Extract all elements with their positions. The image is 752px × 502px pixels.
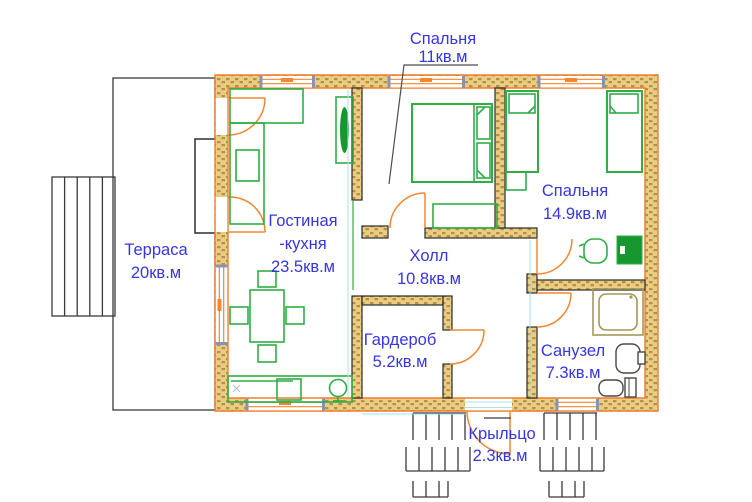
window-bedroom-right	[538, 76, 606, 88]
desk-item	[620, 246, 625, 254]
wall-wardrobe-right-a	[443, 296, 452, 330]
double-bed	[412, 104, 492, 182]
door-bedroom-right	[537, 239, 572, 274]
single-bed-right	[607, 91, 642, 172]
chimney-block	[195, 139, 216, 233]
counter-mark	[233, 385, 240, 392]
wall-wardrobe-right-b	[443, 364, 452, 398]
wall-living-wardrobe	[352, 296, 362, 398]
tall-plant	[336, 97, 353, 163]
hall-label-area: 10.8кв.м	[397, 270, 461, 288]
living-label-name: Гостиная	[268, 212, 337, 230]
living-label-name2: -кухня	[279, 235, 326, 253]
bathroom-label-name: Санузел	[541, 342, 605, 360]
hall-label-name: Холл	[410, 247, 449, 265]
window-bedroom-top	[388, 76, 466, 88]
floor-plan-drawing: Спальня 11кв.м Спальня 14.9кв.м Терраса …	[0, 0, 752, 502]
wardrobe-label-name: Гардероб	[364, 331, 437, 349]
door-terrace-1	[228, 98, 265, 135]
window-left-wall	[216, 265, 228, 346]
terrace-label-name: Терраса	[124, 241, 188, 259]
bedroom-top-label-name: Спальня	[410, 30, 476, 48]
bedroom-right-label-area: 14.9кв.м	[543, 205, 607, 223]
door-bathroom	[537, 293, 571, 327]
shower-cabin	[593, 289, 643, 335]
wall-bedroom-hall	[425, 228, 537, 238]
door-bedroom-top	[390, 193, 425, 228]
terrace-door-opening-1	[216, 98, 228, 135]
terrace-label-area: 20кв.м	[131, 264, 181, 282]
terrace-door-opening-2	[216, 197, 228, 232]
bedroom-right-label-name: Спальня	[542, 182, 608, 200]
nightstand	[506, 172, 526, 190]
dining-table	[250, 290, 284, 342]
entrance-opening	[465, 399, 512, 411]
wall-wardrobe-top	[362, 296, 443, 305]
wall-hall-pier	[362, 226, 388, 238]
window-bathroom-bottom	[556, 399, 600, 411]
desk-chair	[584, 239, 607, 263]
porch-label-area: 2.3кв.м	[473, 447, 528, 465]
terrace-steps	[52, 177, 115, 316]
door-terrace-2	[228, 197, 265, 232]
porch-label-name: Крыльцо	[468, 425, 535, 443]
bedroom-top-label-area: 11кв.м	[418, 48, 467, 66]
pillow	[477, 107, 490, 139]
bathroom-sink	[616, 344, 645, 373]
bathroom-label-area: 7.3кв.м	[546, 364, 601, 382]
floor-plan: Спальня 11кв.м Спальня 14.9кв.м Терраса …	[0, 0, 752, 502]
living-label-area: 23.5кв.м	[271, 258, 335, 276]
wall-hall-bathroom-b	[527, 327, 537, 398]
chair	[286, 307, 304, 324]
desk-and-chair	[579, 236, 642, 264]
door-wardrobe	[450, 330, 484, 364]
corner-sofa	[230, 89, 303, 224]
wall-hall-bathroom-a	[527, 274, 537, 293]
wardrobe-label-area: 5.2кв.м	[373, 353, 428, 371]
dining-table-set	[230, 271, 304, 362]
chair	[258, 345, 276, 362]
stove	[277, 379, 301, 400]
window-living-top	[260, 76, 316, 88]
single-bed-left	[506, 91, 538, 190]
chair	[230, 307, 248, 324]
toilet	[599, 378, 636, 397]
wardrobe-cabinet	[433, 204, 497, 228]
